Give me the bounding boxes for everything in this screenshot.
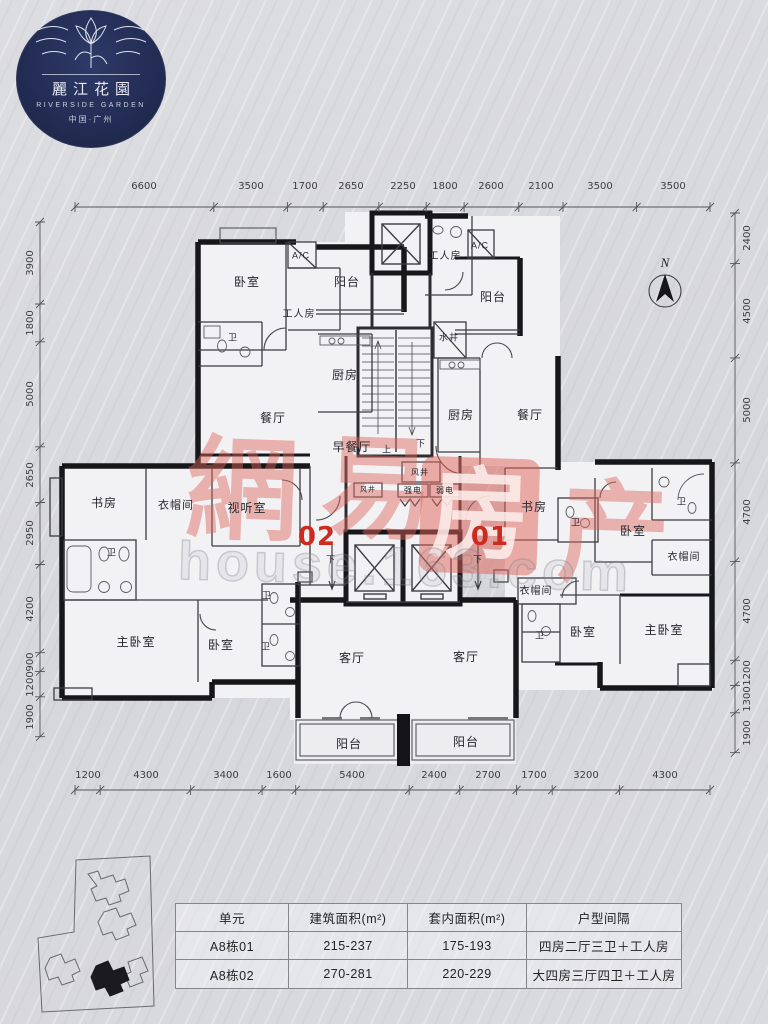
room-label-bedroom-br: 卧室 <box>570 626 596 638</box>
dim-left-5: 4200 <box>26 596 36 621</box>
dim-bottom-3: 1600 <box>266 771 291 781</box>
room-label-breakfast: 早餐厅 <box>332 441 371 453</box>
table-cell: 220-229 <box>408 960 527 988</box>
room-label-worker-left: 工人房 <box>283 310 316 320</box>
dim-right-2: 5000 <box>743 397 753 422</box>
dim-right-6: 1300 <box>743 686 753 711</box>
room-label-cloak-r1: 衣帽间 <box>668 553 701 563</box>
table-cell: 四房二厅三卫＋工人房 <box>527 932 681 960</box>
dim-left-4: 2950 <box>26 520 36 545</box>
room-label-dining-left: 餐厅 <box>260 412 286 424</box>
logo-name-en: RIVERSIDE GARDEN <box>36 102 146 109</box>
logo-riverside-garden: 麗江花園 RIVERSIDE GARDEN 中国·广州 <box>16 10 166 148</box>
room-label-power-strong: 强电 <box>404 487 422 495</box>
room-label-power-weak: 弱电 <box>436 487 454 495</box>
dim-right-3: 4700 <box>743 499 753 524</box>
room-label-dining-right: 餐厅 <box>517 409 543 421</box>
room-label-cloak-r2: 衣帽间 <box>520 587 553 597</box>
room-label-cloak-left: 衣帽间 <box>158 501 194 512</box>
table-cell: A8栋02 <box>176 960 289 988</box>
dim-top-9: 3500 <box>660 182 685 192</box>
logo-name-cn: 麗江花園 <box>52 78 136 99</box>
dim-left-6: 900 <box>26 652 36 671</box>
dim-top-4: 2250 <box>390 182 415 192</box>
floor-plan-drawing <box>0 0 768 1024</box>
table-header-layout: 户型间隔 <box>527 904 681 932</box>
room-label-bedroom-tl: 卧室 <box>234 276 260 288</box>
table-header-net-area: 套内面积(m²) <box>408 904 527 932</box>
dim-right-1: 4500 <box>743 298 753 323</box>
logo-flower-icon <box>32 10 150 74</box>
room-label-bath-br: 卫 <box>535 632 545 641</box>
dim-left-3: 2650 <box>26 462 36 487</box>
dim-top-2: 1700 <box>292 182 317 192</box>
dim-bottom-6: 2700 <box>475 771 500 781</box>
table-cell: 大四房三厅四卫＋工人房 <box>527 960 681 988</box>
dim-top-8: 3500 <box>587 182 612 192</box>
north-compass-icon <box>649 274 681 307</box>
table-cell: 215-237 <box>289 932 408 960</box>
stairs-down-label: 下 <box>416 440 426 449</box>
dim-top-1: 3500 <box>238 182 263 192</box>
dim-left-2: 5000 <box>26 381 36 406</box>
room-label-shaft-small: 风井 <box>360 487 376 494</box>
room-label-balcony-tr: 阳台 <box>480 291 506 303</box>
room-label-balcony-br: 阳台 <box>453 736 479 748</box>
dim-right-4: 4700 <box>743 598 753 623</box>
room-label-ac-right: A/C <box>471 242 489 251</box>
table-cell: A8栋01 <box>176 932 289 960</box>
table-header-unit: 单元 <box>176 904 289 932</box>
room-label-bedroom-r: 卧室 <box>620 525 646 537</box>
unit-01-label: 01 <box>471 524 509 550</box>
room-label-shaft-big: 风井 <box>411 469 429 477</box>
dim-top-0: 6600 <box>131 182 156 192</box>
dim-left-7: 1200 <box>26 671 36 696</box>
room-label-worker-right: 工人房 <box>429 252 462 262</box>
room-label-av-room: 视听室 <box>227 502 266 514</box>
room-label-study-right: 书房 <box>521 501 547 513</box>
corridor-down-left: 下 <box>326 556 336 565</box>
dim-right-7: 1900 <box>743 720 753 745</box>
dim-top-3: 2650 <box>338 182 363 192</box>
logo-divider <box>42 74 140 75</box>
room-label-study-left: 书房 <box>91 497 117 509</box>
dim-top-5: 1800 <box>432 182 457 192</box>
dim-left-1: 1800 <box>26 310 36 335</box>
dim-bottom-7: 1700 <box>521 771 546 781</box>
room-label-living-left: 客厅 <box>339 652 365 664</box>
room-label-ac-left: A/C <box>292 252 310 261</box>
room-label-bath-r1: 卫 <box>571 519 581 528</box>
dim-bottom-8: 3200 <box>573 771 598 781</box>
dim-top-6: 2600 <box>478 182 503 192</box>
room-label-kitchen-right: 厨房 <box>448 409 474 421</box>
table-cell: 270-281 <box>289 960 408 988</box>
table-header-gross-area: 建筑面积(m²) <box>289 904 408 932</box>
site-key-map <box>38 856 154 1012</box>
stairs-up-label: 上 <box>382 446 392 455</box>
north-label: N <box>661 255 670 271</box>
room-label-kitchen-left: 厨房 <box>332 369 358 381</box>
room-label-bath-tl: 卫 <box>228 334 238 343</box>
logo-location: 中国·广州 <box>69 114 114 125</box>
dim-bottom-1: 4300 <box>133 771 158 781</box>
dim-right-0: 2400 <box>743 225 753 250</box>
room-label-balcony-tl: 阳台 <box>334 276 360 288</box>
room-label-living-right: 客厅 <box>453 651 479 663</box>
floorplan-page: 網 易 房 产 house.163.com 麗江花園 RIVERSIDE GAR… <box>0 0 768 1024</box>
dim-bottom-5: 2400 <box>421 771 446 781</box>
dim-bottom-4: 5400 <box>339 771 364 781</box>
corridor-down-right: 下 <box>473 556 483 565</box>
room-label-bath-bl1: 卫 <box>262 592 272 601</box>
dim-bottom-2: 3400 <box>213 771 238 781</box>
dim-bottom-9: 4300 <box>652 771 677 781</box>
unit-02-label: 02 <box>298 524 336 550</box>
dim-left-8: 1900 <box>26 704 36 729</box>
room-label-bath-bl2: 卫 <box>261 643 271 652</box>
room-label-bath-r2: 卫 <box>677 498 687 507</box>
room-label-water-well: 水井 <box>439 334 459 343</box>
room-label-master-right: 主卧室 <box>644 624 683 636</box>
dim-top-7: 2100 <box>528 182 553 192</box>
dim-left-0: 3900 <box>26 250 36 275</box>
dim-right-5: 1200 <box>743 660 753 685</box>
room-label-bath-left: 卫 <box>107 549 117 558</box>
room-label-master-left: 主卧室 <box>116 636 155 648</box>
unit-info-table: 单元 建筑面积(m²) 套内面积(m²) 户型间隔 A8栋01 215-237 … <box>175 903 682 989</box>
room-label-balcony-bl: 阳台 <box>336 738 362 750</box>
dim-bottom-0: 1200 <box>75 771 100 781</box>
table-cell: 175-193 <box>408 932 527 960</box>
room-label-bedroom-bl: 卧室 <box>208 639 234 651</box>
